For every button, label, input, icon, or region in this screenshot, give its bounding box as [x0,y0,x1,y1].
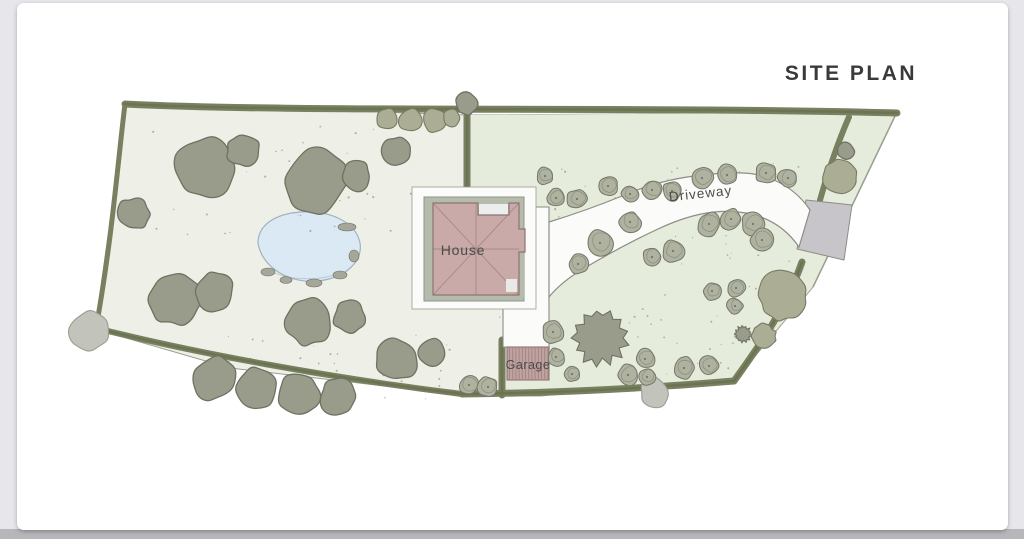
stipple-dot [725,243,726,244]
stipple-dot [348,196,350,198]
stipple-dot [675,236,676,237]
stipple-dot [642,308,644,310]
stipple-dot [440,370,442,372]
stipple-dot [334,363,335,364]
stipple-dot [727,367,729,369]
stipple-dot [629,322,630,323]
stipple-dot [667,179,668,180]
stipple-dot [366,193,368,195]
stipple-dot [252,338,254,340]
stipple-dot [798,166,800,168]
stipple-dot [156,228,158,230]
stipple-dot [634,316,636,318]
shrub-center-dot [544,175,546,177]
stipple-dot [173,209,174,210]
tree-round [444,109,460,127]
stipple-dot [446,344,447,345]
stipple-dot [298,215,299,216]
roof-dormer [506,279,517,292]
stipple-dot [755,288,757,290]
shrub-center-dot [629,221,631,223]
stipple-dot [749,286,750,287]
stipple-dot [264,176,266,178]
stipple-dot [734,335,736,337]
stipple-dot [660,319,662,321]
stipple-dot [721,344,722,345]
shrub-center-dot [555,197,557,199]
shrub-center-dot [552,331,554,333]
stipple-dot [206,213,208,215]
stipple-dot [650,323,652,325]
stipple-dot [449,349,451,351]
stipple-dot [336,370,338,372]
stipple-dot [585,186,586,187]
roof-notch [479,204,508,215]
shrub-center-dot [487,386,489,388]
stipple-dot [554,208,556,210]
stipple-dot [681,263,682,264]
stipple-dot [355,132,357,134]
stipple-dot [438,378,440,380]
stipple-dot [434,390,436,392]
shrub-center-dot [646,376,648,378]
stipple-dot [739,171,740,172]
shrub-center-dot [726,174,728,176]
shrub-center-dot [708,223,710,225]
stipple-dot [731,252,732,253]
stipple-dot [663,336,665,338]
stipple-dot [187,234,189,236]
shrub-center-dot [761,239,763,241]
stipple-dot [415,335,416,336]
stipple-dot [564,171,566,173]
stipple-dot [262,340,264,342]
stipple-dot [372,196,374,198]
shrub-center-dot [735,287,737,289]
stipple-dot [390,230,392,232]
stipple-dot [364,218,365,219]
house-label: House [441,242,485,258]
stipple-dot [299,357,301,359]
stipple-dot [309,230,311,232]
shrub-center-dot [752,223,754,225]
stipple-dot [558,216,560,218]
stipple-dot [347,153,348,154]
shrub-center-dot [701,177,703,179]
stipple-dot [410,193,412,195]
shrub-center-dot [730,218,732,220]
stipple-dot [401,380,403,382]
shrub-center-dot [711,290,713,292]
stipple-dot [281,149,283,151]
shrub-center-dot [734,305,736,307]
stipple-dot [319,126,321,128]
stipple-dot [757,254,759,256]
site-plan-canvas: House Garage Driveway SITE PLAN [0,0,1024,539]
tree [227,135,259,166]
stipple-dot [676,343,677,344]
tree-round [377,108,397,128]
stipple-dot [720,362,722,364]
stipple-dot [329,353,331,355]
stipple-dot [313,346,314,347]
stipple-dot [664,294,666,296]
screenshot-stage: House Garage Driveway SITE PLAN [0,0,1024,539]
stipple-dot [384,397,385,398]
stipple-dot [671,171,673,173]
stipple-dot [561,169,562,170]
stipple-dot [302,142,303,143]
shrub-center-dot [577,263,579,265]
shrub-center-dot [599,242,601,244]
shrub-center-dot [571,373,573,375]
stipple-dot [710,321,712,323]
page-bottom-strip [0,529,1024,539]
stipple-dot [788,261,790,263]
stipple-dot [676,167,678,169]
shrub-center-dot [708,365,710,367]
stipple-dot [224,233,226,235]
stipple-dot [334,226,336,228]
shrub-center-dot [555,356,557,358]
tree-scalloped [823,159,857,193]
shrub-center-dot [765,172,767,174]
tree-round [424,109,447,133]
stipple-dot [438,385,440,387]
stipple-dot [339,200,340,201]
stipple-dot [246,171,247,172]
shrub-center-dot [644,358,646,360]
stipple-dot [373,129,374,130]
tree [381,137,410,165]
shrub-center-dot [607,185,609,187]
shrub-center-dot [683,367,685,369]
stipple-dot [411,388,413,390]
shrub-center-dot [672,250,674,252]
stipple-dot [732,342,734,344]
stipple-dot [337,353,339,355]
stipple-dot [275,151,277,153]
stipple-dot [725,235,726,236]
stipple-dot [318,362,320,364]
stipple-dot [692,237,693,238]
shrub-center-dot [651,189,653,191]
stipple-dot [229,232,230,233]
stipple-dot [727,254,729,256]
shrub-center-dot [576,198,578,200]
stipple-dot [697,363,698,364]
tree [320,378,355,415]
stipple-dot [379,384,381,386]
shrub-center-dot [651,256,653,258]
stipple-dot [152,131,154,133]
stipple-dot [709,348,711,350]
tree-scalloped [758,270,806,321]
shrub-center-dot [627,374,629,376]
stipple-dot [666,374,667,375]
garage-label: Garage [506,358,551,372]
stipple-dot [716,316,717,317]
shrub-center-dot [468,384,470,386]
shrub-center-dot [787,177,789,179]
stipple-dot [499,317,500,318]
shrub-center-dot [629,193,631,195]
stipple-dot [647,315,649,317]
stipple-dot [773,163,774,164]
stipple-dot [250,358,252,360]
stipple-dot [288,160,290,162]
stipple-dot [729,258,730,259]
tree [117,198,150,228]
site-plan-title: SITE PLAN [785,62,917,85]
stipple-dot [228,336,229,337]
stipple-dot [637,336,639,338]
stipple-dot [300,215,302,217]
stipple-dot [425,398,426,399]
